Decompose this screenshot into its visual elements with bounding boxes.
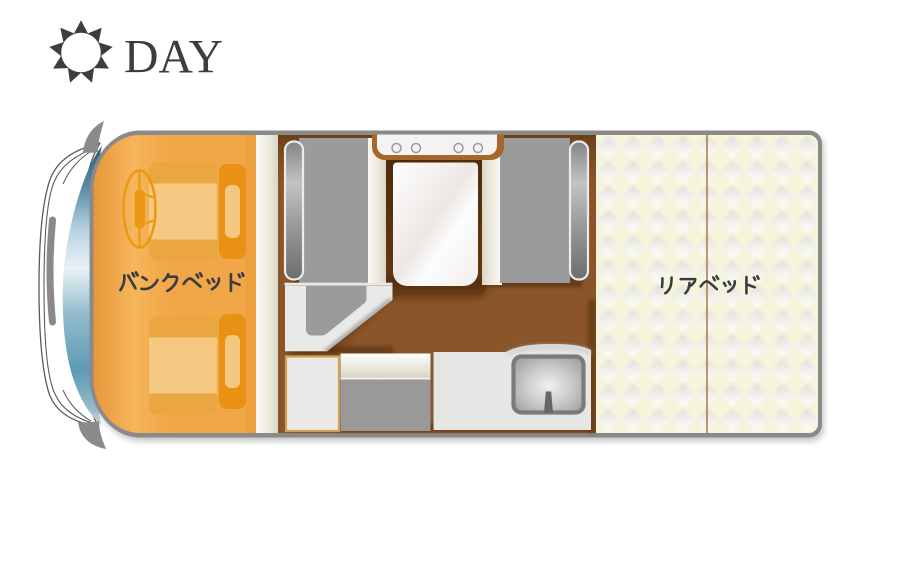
svg-text:DAY: DAY bbox=[124, 31, 223, 84]
